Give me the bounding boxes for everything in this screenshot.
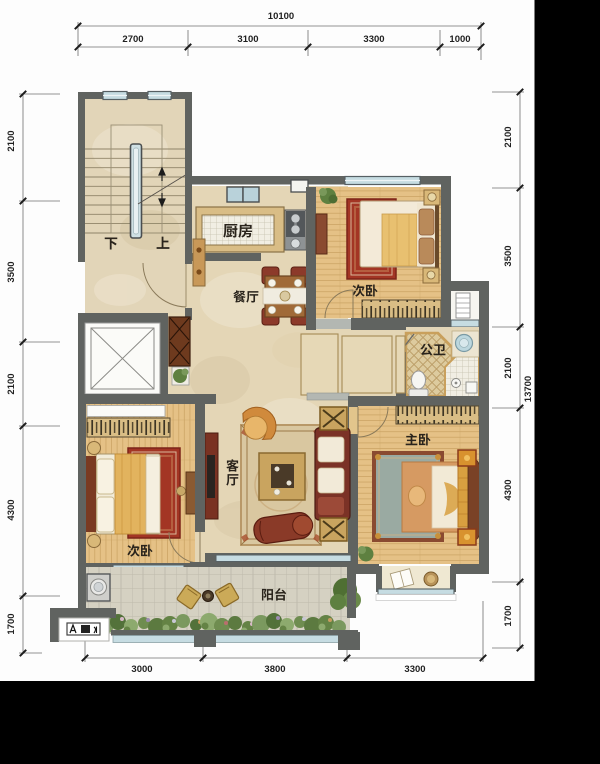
svg-text:3300: 3300: [404, 664, 425, 675]
svg-text:2100: 2100: [6, 130, 17, 151]
svg-text:13700: 13700: [523, 376, 534, 402]
svg-text:1700: 1700: [503, 605, 514, 626]
svg-text:10100: 10100: [268, 11, 294, 22]
svg-text:4300: 4300: [6, 499, 17, 520]
svg-text:2100: 2100: [503, 126, 514, 147]
svg-text:1000: 1000: [449, 34, 470, 45]
svg-text:3300: 3300: [363, 34, 384, 45]
svg-text:2700: 2700: [122, 34, 143, 45]
svg-text:4300: 4300: [503, 479, 514, 500]
svg-text:2100: 2100: [6, 373, 17, 394]
svg-text:3100: 3100: [237, 34, 258, 45]
svg-text:2100: 2100: [503, 357, 514, 378]
svg-text:3000: 3000: [131, 664, 152, 675]
svg-text:3800: 3800: [264, 664, 285, 675]
svg-text:3500: 3500: [503, 245, 514, 266]
svg-text:3500: 3500: [6, 261, 17, 282]
svg-text:1700: 1700: [6, 613, 17, 634]
